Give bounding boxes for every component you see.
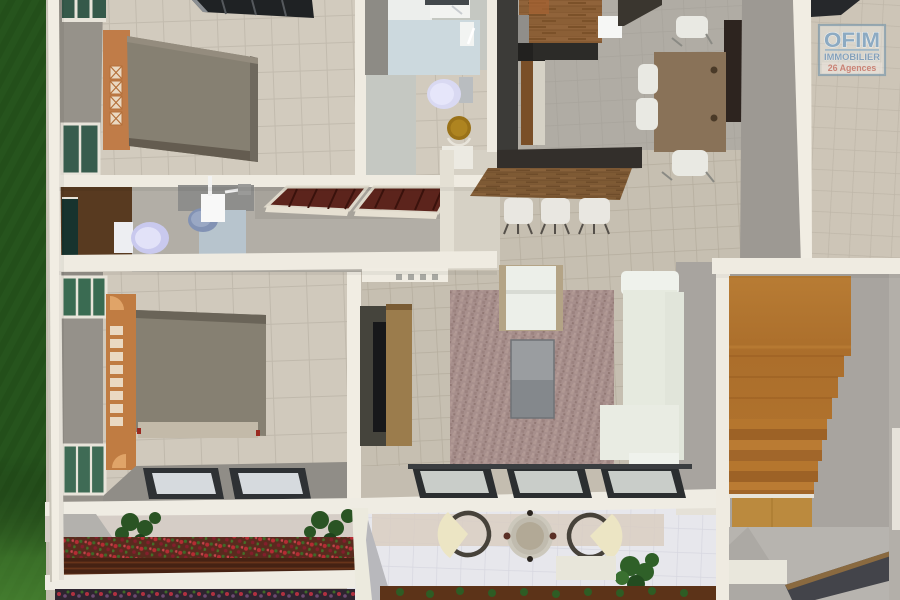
svg-text:OFIM: OFIM xyxy=(824,29,880,52)
svg-text:IMMOBILIER: IMMOBILIER xyxy=(824,52,880,63)
svg-text:26 Agences: 26 Agences xyxy=(828,63,877,73)
